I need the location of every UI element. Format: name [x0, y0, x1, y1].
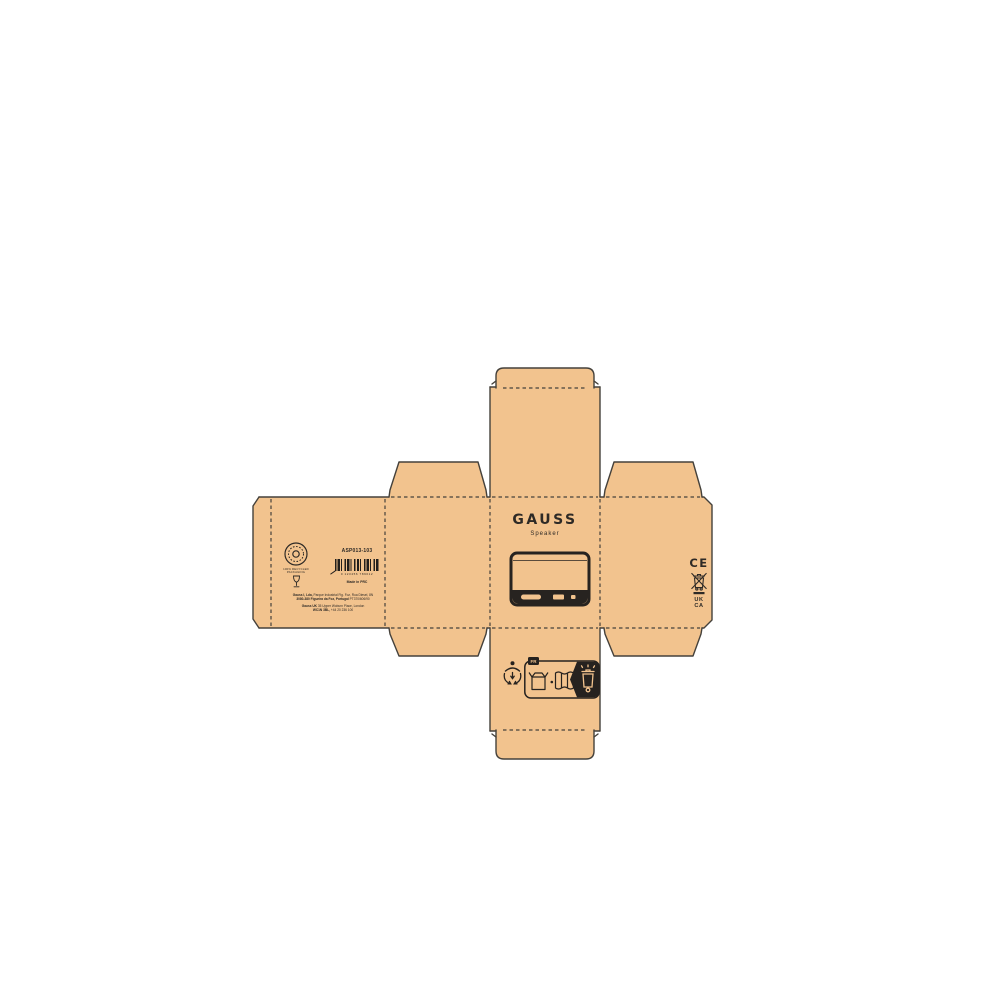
address-line1-bold: Gauss I, Lda, [293, 593, 313, 597]
address-line2-bold: 3080-380 Figueira da Foz, Portugal [296, 597, 348, 601]
compliance-marks: CE UK CA [685, 556, 713, 609]
ce-mark: CE [689, 556, 708, 570]
speaker-port-small [553, 595, 564, 600]
dust-flap-bottom-right [604, 627, 702, 656]
address-line: WC1N 3BL, +44 20 236 100 [277, 608, 389, 612]
address-line1-rest: Parque Industrial Fig. Foz, Rua Diesel, … [313, 593, 374, 597]
address-line3-rest: 35 Upper Woburn Place, London [317, 604, 364, 608]
ukca-line2: CA [694, 603, 703, 609]
arrow-section [570, 662, 599, 697]
dust-flap-top-right [604, 462, 702, 499]
speaker-port-wide [521, 595, 541, 600]
tuck-flap-bottom [496, 728, 594, 759]
ukca-mark: UK CA [694, 597, 703, 609]
product-name: Speaker [490, 531, 600, 537]
address-line: 3080-380 Figueira da Foz, Portugal PT370… [277, 597, 389, 601]
packaging-dieline-page: GAUSS Speaker 100% RECYCLED PACKAGING AS… [0, 0, 1000, 1000]
triman-icon [501, 660, 524, 686]
dieline-drawing [0, 0, 1000, 1000]
manufacturer-address-block: Gauss I, Lda, Parque Industrial Fig. Foz… [277, 593, 389, 613]
address-line4-bold: WC1N 3BL, [313, 608, 330, 612]
eco-seal-icon [282, 540, 310, 568]
sorting-info-tab-label: FR [531, 659, 538, 664]
speaker-illustration [509, 551, 591, 607]
address-line4-rest: +44 20 236 100 [330, 608, 353, 612]
barcode-bars [335, 559, 379, 571]
dust-flap-top-left [389, 462, 487, 499]
made-in-label: Made in PRC [338, 580, 376, 584]
panel-fills [253, 368, 712, 759]
glue-flap [253, 497, 271, 628]
weee-bin-icon [691, 572, 707, 595]
barcode: 0 123456 789012 [332, 559, 382, 576]
sorting-info-label: FR [524, 657, 600, 699]
barcode-digits: 0 123456 789012 [332, 572, 382, 576]
side-panel-left [385, 497, 490, 628]
address-line3-bold: Gauss UK [302, 604, 317, 608]
top-panel [490, 387, 600, 497]
dust-flap-bottom-left [389, 627, 487, 656]
eco-seal-caption: 100% RECYCLED PACKAGING [276, 568, 316, 575]
glass-icon [291, 575, 302, 588]
plus-dot [551, 681, 554, 684]
sku-code: ASP013-103 [330, 548, 384, 554]
speaker-port-dot [571, 595, 576, 599]
cardboard-box-icon [529, 673, 548, 690]
address-line2-rest: PT370/606/90 [349, 597, 370, 601]
tuck-flap-top [496, 368, 594, 390]
brand-name: GAUSS [490, 512, 600, 528]
